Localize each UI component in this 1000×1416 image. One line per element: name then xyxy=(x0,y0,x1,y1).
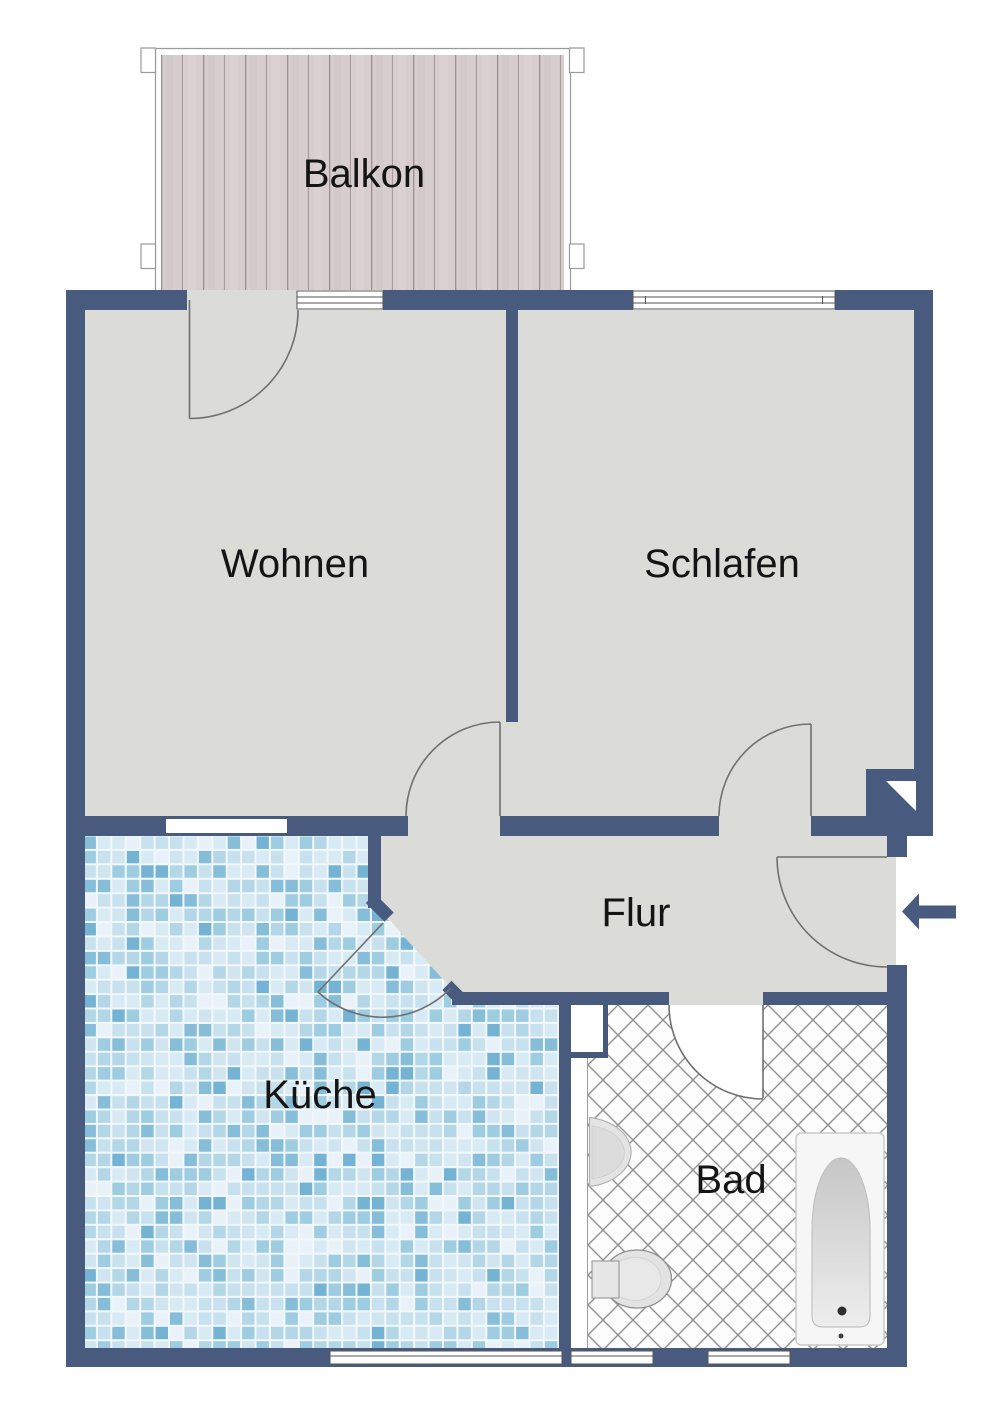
svg-text:Küche: Küche xyxy=(263,1073,376,1117)
svg-text:Schlafen: Schlafen xyxy=(644,542,800,586)
svg-text:Wohnen: Wohnen xyxy=(221,542,369,586)
svg-text:Bad: Bad xyxy=(695,1158,766,1202)
svg-text:Balkon: Balkon xyxy=(303,152,425,196)
svg-text:Flur: Flur xyxy=(602,891,671,935)
